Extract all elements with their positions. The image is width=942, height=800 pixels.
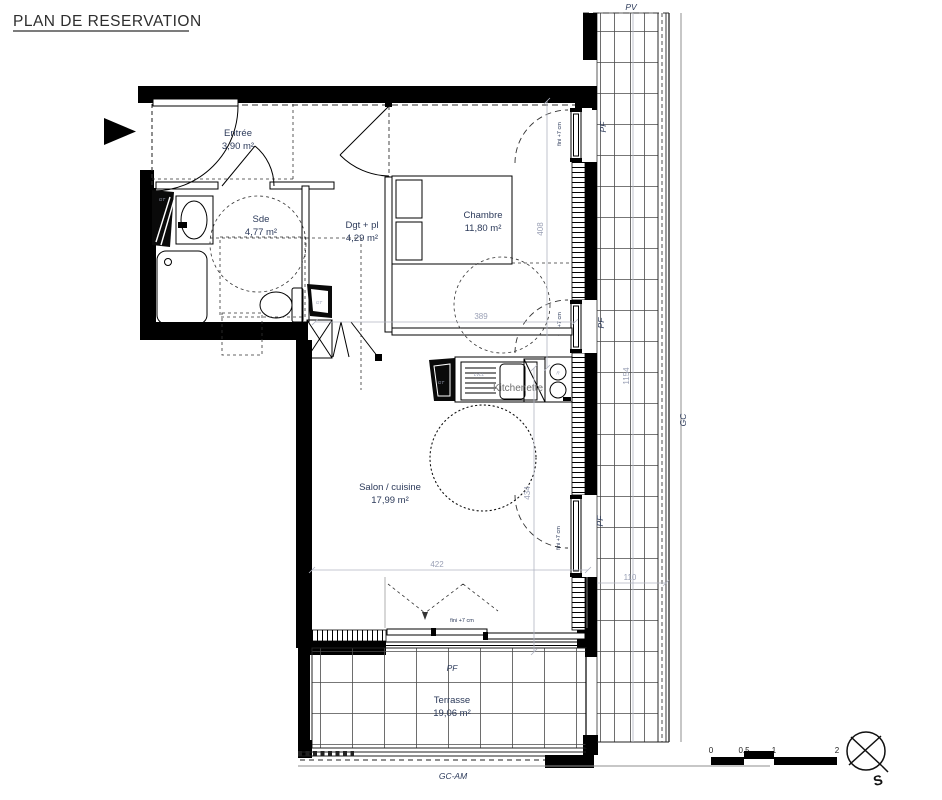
plan-title: PLAN DE RESERVATION xyxy=(13,13,202,30)
bed-pillow xyxy=(396,180,422,218)
scale-segment-3 xyxy=(774,757,837,765)
window-cap xyxy=(570,495,582,499)
slider-handle xyxy=(431,628,436,636)
window-cap xyxy=(570,573,582,577)
compass: S xyxy=(847,732,888,789)
sde-door-leaf xyxy=(222,146,255,186)
slider-arrow-icon xyxy=(422,612,428,620)
slider-handle xyxy=(483,632,488,640)
partition-chambre-salon xyxy=(392,328,572,335)
compass-south-pointer xyxy=(882,766,888,772)
wall-salon-left xyxy=(296,340,312,648)
chambre-furniture xyxy=(392,176,572,353)
sde-clearance-lines xyxy=(210,238,361,390)
wall-right-seg1 xyxy=(585,162,597,300)
pf-label-terrace: PF xyxy=(447,663,459,673)
entry-arrow-icon xyxy=(104,118,136,145)
pf-label-3: PF xyxy=(595,515,605,527)
salon: fini +7 cm xyxy=(385,405,588,646)
page-title: PLAN DE RESERVATION xyxy=(13,13,202,31)
terrace: GC-AM PF xyxy=(298,648,770,781)
insulation-bottom xyxy=(310,630,386,641)
window-cap xyxy=(570,108,582,112)
shower-drain xyxy=(165,259,172,266)
pf-label-1: PF xyxy=(598,121,608,133)
room-name-chambre: Chambre xyxy=(463,210,502,221)
compass-cross-icon xyxy=(849,736,882,766)
fini-note-4: fini +7 cm xyxy=(450,618,474,624)
partition-dgt-chambre xyxy=(385,177,392,332)
slider-panel-2 xyxy=(485,633,585,639)
window-cap xyxy=(570,300,582,304)
pf-label-2: PF xyxy=(596,317,606,329)
bed-pillow xyxy=(396,222,422,260)
room-area-dgt: 4,29 m² xyxy=(346,233,378,244)
dim-110: 110 xyxy=(624,573,637,582)
fini-note-3: fini +7 cm xyxy=(556,526,562,550)
room-name-sde: Sde xyxy=(253,214,270,225)
room-name-entree: Entrée xyxy=(224,128,252,139)
wc-bowl-icon xyxy=(260,292,292,318)
washbasin-tap xyxy=(178,222,187,228)
room-name-terrasse: Terrasse xyxy=(434,695,470,706)
chambre-turning-circle xyxy=(454,257,550,353)
pv-label: PV xyxy=(625,2,638,12)
wall-top-right-corner xyxy=(575,86,597,110)
dim-1154: 1154 xyxy=(622,367,631,385)
kitchen: GT R LVLL Kitchenette xyxy=(429,357,572,402)
hob-burner-icon xyxy=(550,382,566,398)
kitchenette-label: Kitchenette xyxy=(493,383,543,394)
south-label: S xyxy=(872,771,884,789)
window-salon xyxy=(515,495,592,577)
fini-note-1: fini +7 cm xyxy=(557,122,563,146)
chambre-door-leaf xyxy=(340,106,389,155)
partition-entree-sde-1 xyxy=(156,182,218,189)
room-area-terrasse: 19,06 m² xyxy=(433,708,471,719)
entry-door-leaf xyxy=(153,99,238,106)
shaft-box-cross xyxy=(307,320,332,358)
gc-label: GC xyxy=(678,413,688,427)
wall-right-seg2 xyxy=(585,353,597,495)
terrace-railing xyxy=(298,752,586,756)
table-circle-icon xyxy=(430,405,536,511)
hob-controls xyxy=(563,397,571,401)
room-area-salon: 17,99 m² xyxy=(371,495,409,506)
scale-bar: 0 0.5 1 2 xyxy=(709,746,840,765)
dgt-door-hinge xyxy=(375,354,382,361)
window-chambre xyxy=(515,108,592,163)
room-name-salon: Salon / cuisine xyxy=(359,482,421,493)
slider-panel-1 xyxy=(387,629,487,635)
dim-389: 389 xyxy=(474,312,488,321)
window-cap xyxy=(570,349,582,353)
loggia: PV PF PF PF GC 1154 110 xyxy=(583,2,688,755)
dim-434: 434 xyxy=(523,486,532,500)
scale-0: 0 xyxy=(709,746,714,755)
chambre-door-arc xyxy=(340,155,389,176)
washbasin-icon xyxy=(181,201,207,239)
sde-door-arc xyxy=(255,146,274,186)
room-area-entree: 3,90 m² xyxy=(222,141,254,152)
scale-2: 2 xyxy=(835,746,840,755)
floor-plan: PLAN DE RESERVATION PV PF PF PF GC 1154 … xyxy=(0,0,942,800)
hob-r-label: R xyxy=(556,371,560,376)
scale-segment-2 xyxy=(744,751,774,759)
insulation-right-3 xyxy=(572,577,585,630)
window-cap xyxy=(570,158,582,162)
dgt-door-fold xyxy=(333,322,349,357)
scale-segment-1 xyxy=(711,757,744,765)
dgt-door-leaf xyxy=(351,322,378,357)
room-area-chambre: 11,80 m² xyxy=(465,223,502,234)
lvll-label: LVLL xyxy=(474,372,485,377)
appliance-diagonal xyxy=(524,359,545,402)
dim-408: 408 xyxy=(536,222,545,236)
insulation-right-1 xyxy=(572,162,585,300)
dim-422: 422 xyxy=(430,560,444,569)
wall-sde-bottom xyxy=(140,322,308,340)
slider-track xyxy=(385,642,588,646)
window-kitchen xyxy=(515,300,592,353)
wall-terrace-left xyxy=(298,648,310,756)
room-area-sde: 4,77 m² xyxy=(245,227,277,238)
gc-am-label: GC-AM xyxy=(439,771,468,781)
sde-turning-circle xyxy=(210,196,306,292)
slider-swing-dashes xyxy=(388,584,498,613)
partitions xyxy=(156,100,572,335)
loggia-divider-top xyxy=(583,13,597,60)
room-name-dgt: Dgt + pl xyxy=(345,220,378,231)
wall-left-nub xyxy=(140,170,154,188)
insulation-right-2 xyxy=(572,353,585,495)
